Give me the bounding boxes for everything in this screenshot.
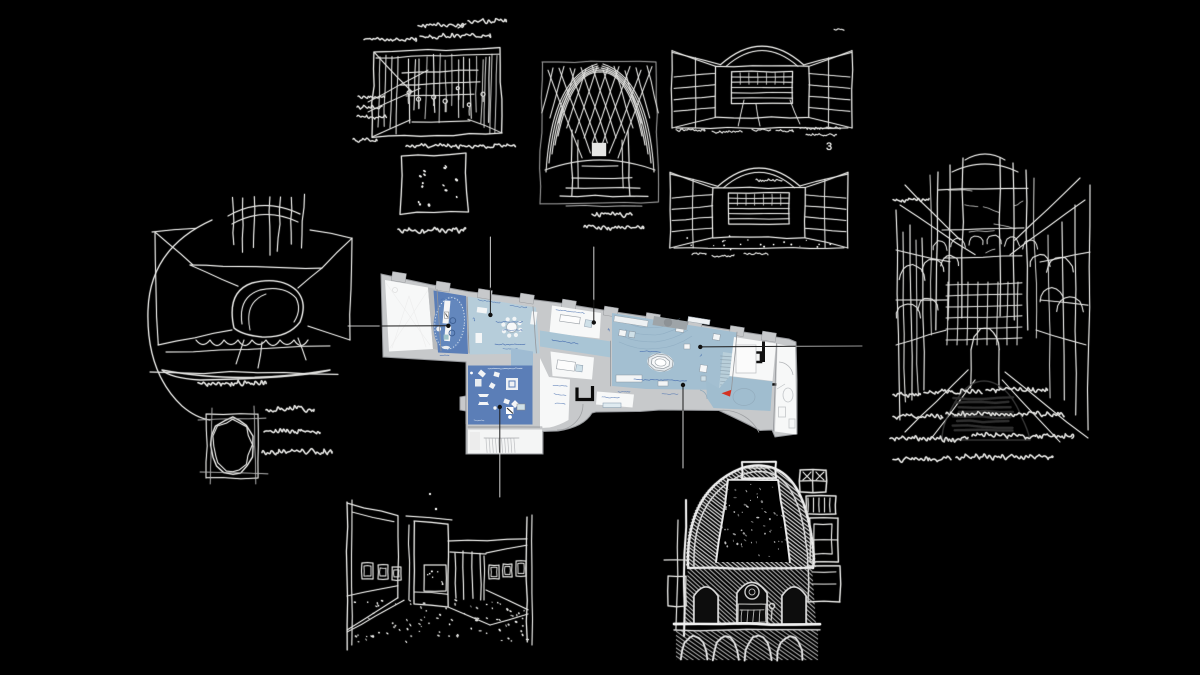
svg-text:3: 3 xyxy=(826,141,832,153)
